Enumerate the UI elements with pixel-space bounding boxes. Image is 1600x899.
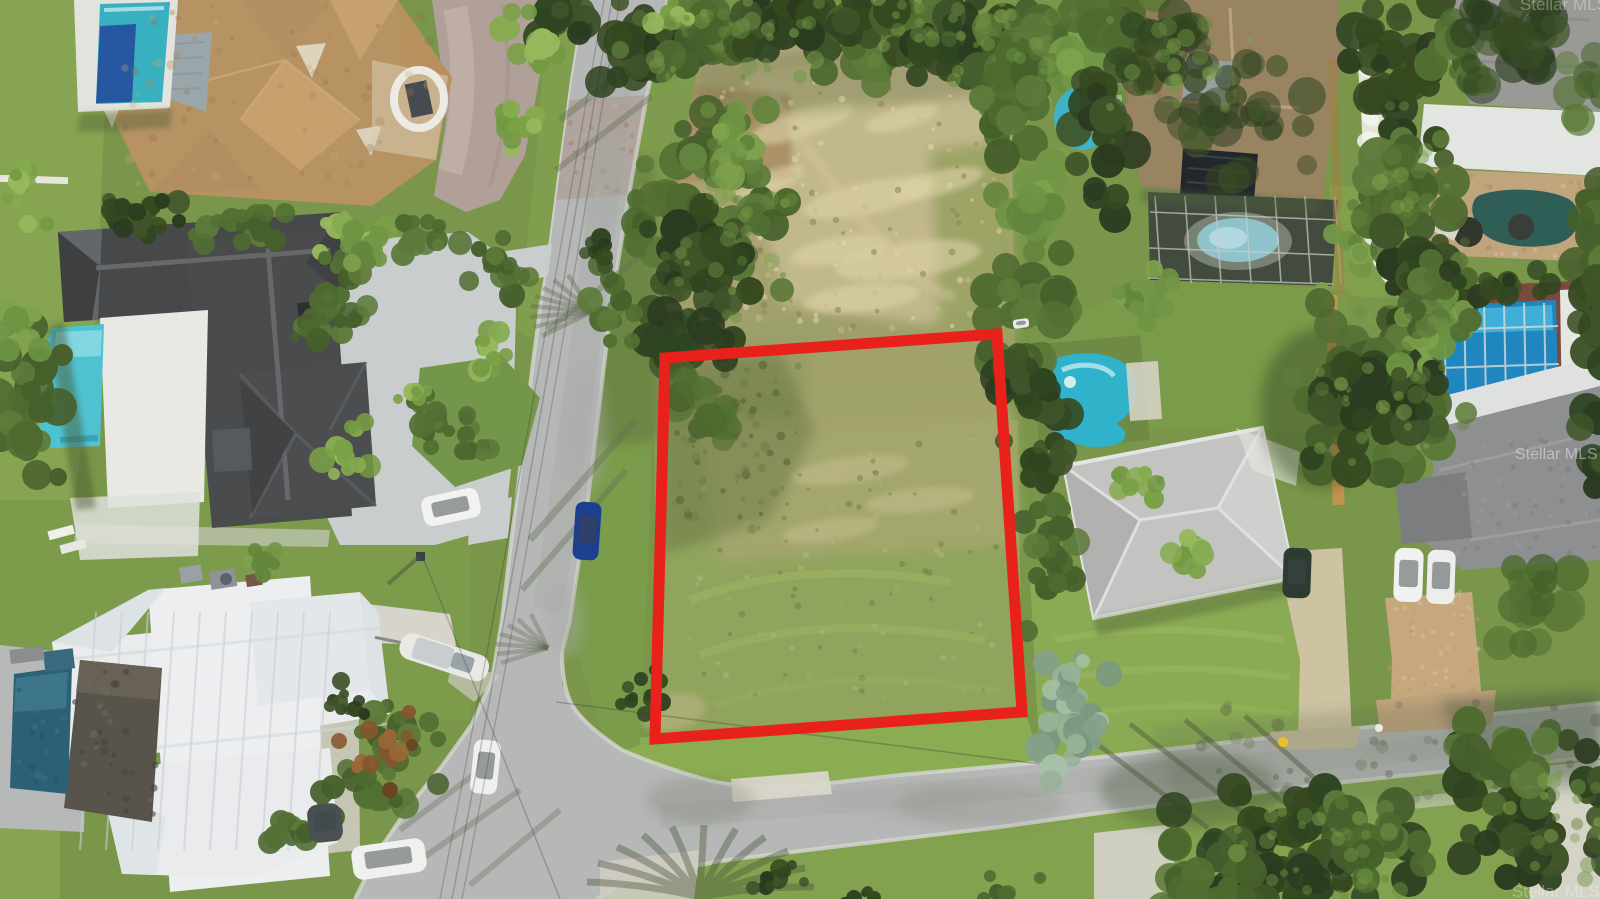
svg-text:Stellar MLS: Stellar MLS <box>1520 0 1600 14</box>
svg-text:Stellar MLS: Stellar MLS <box>1515 446 1598 463</box>
svg-text:Stellar MLS: Stellar MLS <box>1512 882 1600 899</box>
svg-text:vf: vf <box>1452 587 1462 601</box>
